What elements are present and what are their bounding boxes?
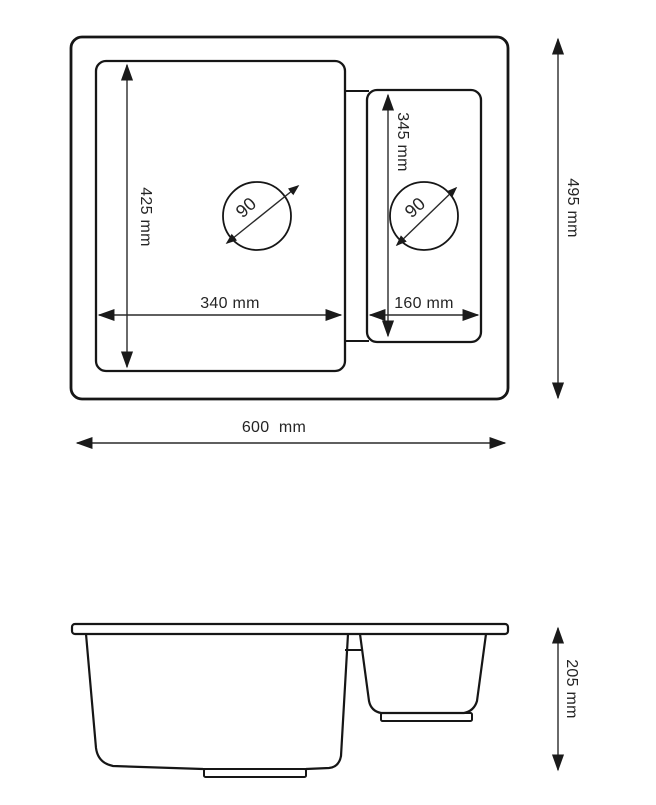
dim-main-bowl-height: 425 mm	[127, 65, 154, 367]
dim-small-bowl-width: 160 mm	[370, 295, 478, 315]
dim-depth: 205 mm	[558, 628, 580, 770]
dim-overall-height-label: 495 mm	[564, 178, 581, 238]
side-view: 205 mm	[72, 624, 580, 777]
dim-small-bowl-height-label: 345 mm	[394, 112, 411, 172]
dim-small-bowl-width-label: 160 mm	[394, 295, 454, 312]
dim-overall-height: 495 mm	[558, 39, 581, 398]
small-bowl-drain: 90	[390, 182, 458, 250]
small-drain-diameter-line	[397, 188, 456, 245]
dim-main-bowl-width-label: 340 mm	[200, 295, 260, 312]
dim-depth-label: 205 mm	[563, 659, 580, 719]
dim-overall-width-label: 600 mm	[242, 419, 306, 436]
side-main-bowl-profile	[86, 634, 348, 769]
sink-technical-drawing: 90 90 425 mm 340 mm 345 mm	[0, 0, 656, 800]
main-bowl	[96, 61, 345, 371]
main-bowl-drain: 90	[223, 182, 298, 250]
dim-main-bowl-width: 340 mm	[99, 295, 341, 315]
side-main-bowl-drain-fitting	[204, 769, 306, 777]
side-rim-slab	[72, 624, 508, 634]
main-drain-circle	[223, 182, 291, 250]
sink-outer-rim	[71, 37, 508, 399]
small-drain-circle	[390, 182, 458, 250]
dim-main-bowl-height-label: 425 mm	[137, 187, 154, 247]
top-view: 90 90 425 mm 340 mm 345 mm	[71, 37, 581, 443]
drawing-canvas: 90 90 425 mm 340 mm 345 mm	[0, 0, 656, 800]
side-small-bowl-profile	[360, 634, 486, 713]
main-drain-diameter-label: 90	[232, 193, 260, 221]
side-small-bowl-drain-fitting	[381, 713, 472, 721]
dim-overall-width: 600 mm	[77, 419, 505, 443]
